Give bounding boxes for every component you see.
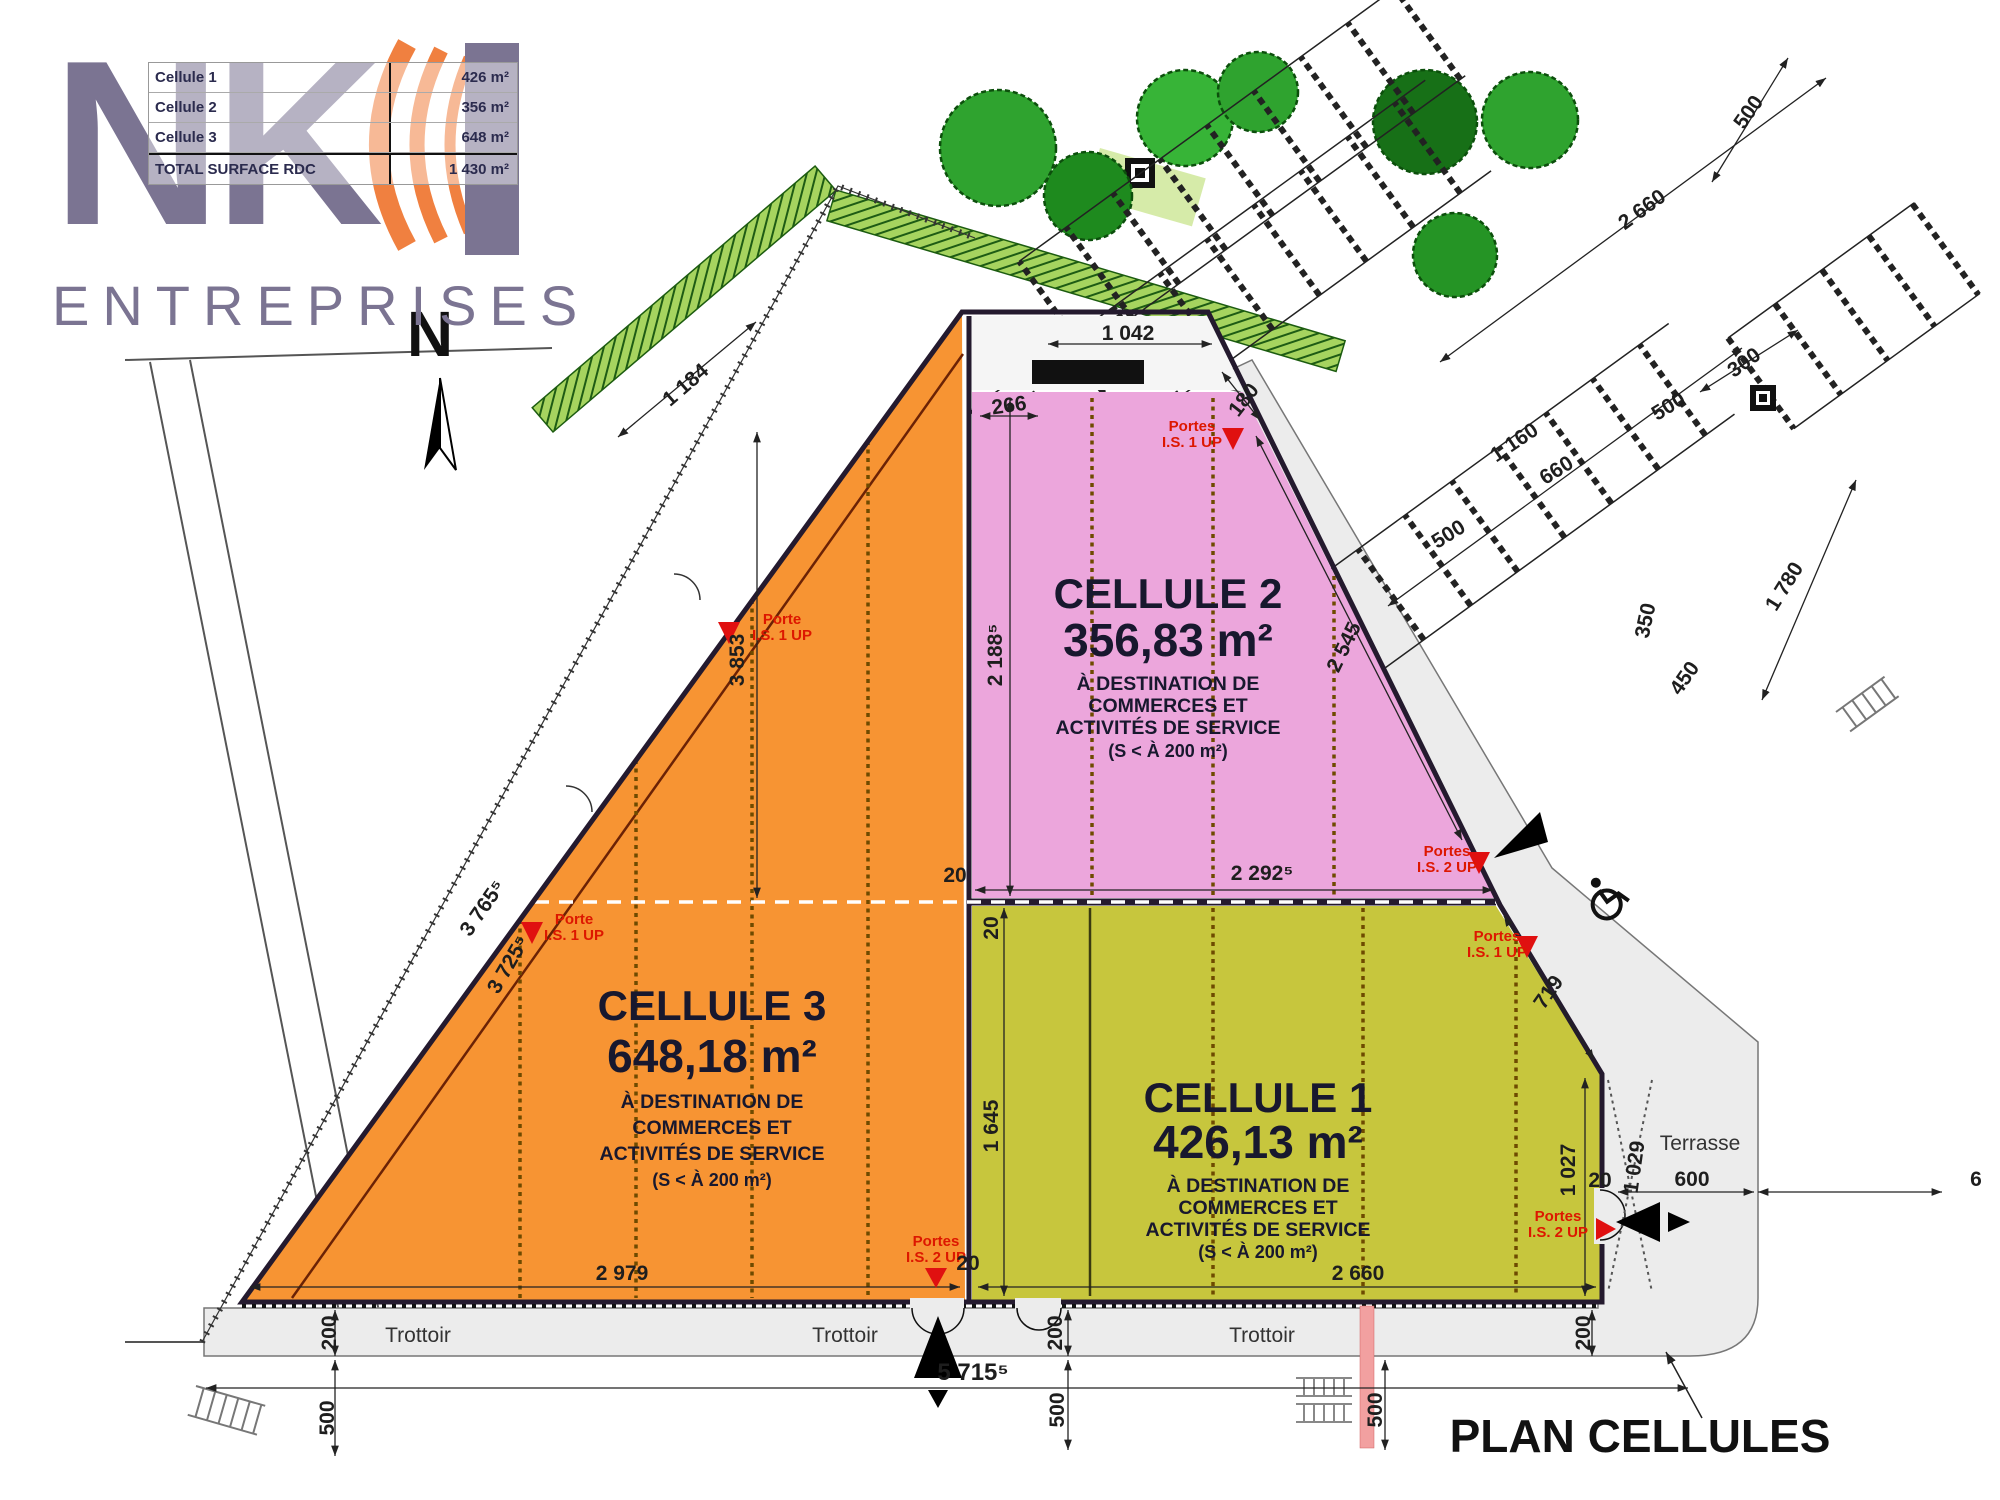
crossing-ladder-s1 (1296, 1378, 1352, 1396)
dim-label: 350 (1631, 601, 1661, 640)
cellule3-dest3: ACTIVITÉS DE SERVICE (599, 1142, 824, 1165)
legend-value: 648 m² (389, 123, 517, 152)
door-label: Portes (913, 1233, 960, 1250)
dim-label: 2 188⁵ (984, 624, 1007, 686)
cellule1-area: 426,13 m² (1153, 1116, 1363, 1168)
door-label: I.S. 2 UP (1417, 859, 1477, 876)
legend-total-value: 1 430 m² (389, 155, 517, 184)
legend-row: Cellule 3 648 m² (149, 123, 517, 153)
door-label: I.S. 2 UP (1528, 1224, 1588, 1241)
dim-label: 500 (1648, 387, 1690, 425)
door-label: Portes (1169, 418, 1216, 435)
dim-label: 20 (956, 1252, 979, 1275)
dim-label: 500 (1428, 515, 1470, 553)
cellule3-dest2: COMMERCES ET (632, 1117, 791, 1139)
cellule3-area: 648,18 m² (607, 1030, 817, 1082)
crossing-ladder-sw (188, 1386, 265, 1435)
cellule1-dest2: COMMERCES ET (1178, 1197, 1337, 1219)
cellule1-title: CELLULE 1 (1144, 1074, 1373, 1121)
dim-label: 3 853 (726, 634, 749, 687)
cellule1-note: (S < À 200 m²) (1198, 1241, 1318, 1262)
door-label: I.S. 1 UP (752, 627, 812, 644)
cellule3-note: (S < À 200 m²) (652, 1169, 772, 1190)
trottoir-label-1: Trottoir (385, 1324, 451, 1347)
cellule2-dest2: COMMERCES ET (1088, 695, 1247, 717)
cellule2-dest3: ACTIVITÉS DE SERVICE (1055, 716, 1280, 739)
dim-label: 6 (1970, 1168, 1982, 1191)
logo-subtitle: ENTREPRISES (52, 273, 612, 338)
trottoir-label-2: Trottoir (812, 1324, 878, 1347)
utility-box-2-core (1759, 394, 1767, 402)
entry-arrow-south-tip (928, 1390, 948, 1408)
site-plan-page: Portes I.S. 1 UP Porte I.S. 1 UP Porte I… (0, 0, 2000, 1500)
door-label: I.S. 1 UP (1162, 434, 1222, 451)
dim-label: 1 042 (1102, 322, 1155, 345)
dim-label: 500 (1729, 91, 1768, 133)
door-label: Portes (1535, 1208, 1582, 1225)
legend-value: 426 m² (389, 63, 517, 92)
crossing-ladder-s2 (1296, 1404, 1352, 1422)
legend-total-label: TOTAL SURFACE RDC (149, 161, 389, 178)
cellule2-area: 356,83 m² (1063, 614, 1273, 666)
dim-label: 200 (318, 1315, 341, 1350)
terrasse-label: Terrasse (1660, 1132, 1741, 1155)
dim-label: 266 (990, 392, 1028, 420)
dim-label: 1 780 (1761, 558, 1808, 615)
dim-label: 2 660 (1332, 1262, 1385, 1285)
legend-label: Cellule 1 (149, 69, 389, 86)
dim-label: 450 (1665, 657, 1704, 699)
dim-label: 1 160 (1486, 418, 1542, 466)
cellule1-dest3: ACTIVITÉS DE SERVICE (1145, 1218, 1370, 1241)
crossing-ladder-e2 (1836, 677, 1899, 732)
trottoir-label-3: Trottoir (1229, 1324, 1295, 1347)
dim-label: 1 027 (1557, 1144, 1580, 1197)
dim-label: 20 (943, 864, 966, 887)
overall-dim-label: 5 715⁵ (937, 1359, 1008, 1386)
dim-label: 2 979 (596, 1262, 649, 1285)
dim-label: 1 645 (980, 1099, 1003, 1152)
dim-label: 20 (980, 916, 1003, 939)
door-label: Portes (1424, 843, 1471, 860)
dim-label: 500 (1364, 1392, 1387, 1427)
dim-label: 500 (316, 1400, 339, 1435)
door-label: Porte (555, 911, 593, 928)
legend-row: Cellule 1 426 m² (149, 63, 517, 93)
dim-label: 200 (1044, 1315, 1067, 1350)
legend-label: Cellule 3 (149, 129, 389, 146)
legend-label: Cellule 2 (149, 99, 389, 116)
entrance-canopy (1032, 360, 1144, 384)
dim-label: 3 765⁵ (455, 876, 510, 940)
cellule1-dest1: À DESTINATION DE (1167, 1174, 1350, 1197)
plan-title: PLAN CELLULES (1450, 1410, 1831, 1462)
door-label: Portes (1474, 928, 1521, 945)
dim-label: 500 (1046, 1392, 1069, 1427)
door-label: I.S. 1 UP (544, 927, 604, 944)
dim-label: 2 292⁵ (1231, 862, 1293, 885)
dim-label: 2 660 (1614, 185, 1670, 235)
cellule2-title: CELLULE 2 (1054, 570, 1283, 617)
legend-row: Cellule 2 356 m² (149, 93, 517, 123)
legend-value: 356 m² (389, 93, 517, 122)
dim-label: 660 (1536, 451, 1578, 489)
door-label: Porte (763, 611, 801, 628)
legend-total-row: TOTAL SURFACE RDC 1 430 m² (149, 153, 517, 184)
dim-label: 200 (1572, 1315, 1595, 1350)
cellule2-dest1: À DESTINATION DE (1077, 672, 1260, 695)
dim-label: 600 (1674, 1168, 1709, 1191)
cellule2-note: (S < À 200 m²) (1108, 740, 1228, 761)
cellule3-dest1: À DESTINATION DE (621, 1090, 804, 1113)
cellule2-text: CELLULE 2 356,83 m² À DESTINATION DE COM… (1054, 570, 1283, 761)
dim-label: 1 184 (658, 359, 713, 411)
cellule3-title: CELLULE 3 (598, 982, 827, 1029)
dim-label: 20 (1588, 1169, 1611, 1192)
door-label: I.S. 1 UP (1467, 944, 1527, 961)
title-leader (1666, 1352, 1702, 1418)
surface-legend-table: Cellule 1 426 m² Cellule 2 356 m² Cellul… (148, 62, 518, 185)
